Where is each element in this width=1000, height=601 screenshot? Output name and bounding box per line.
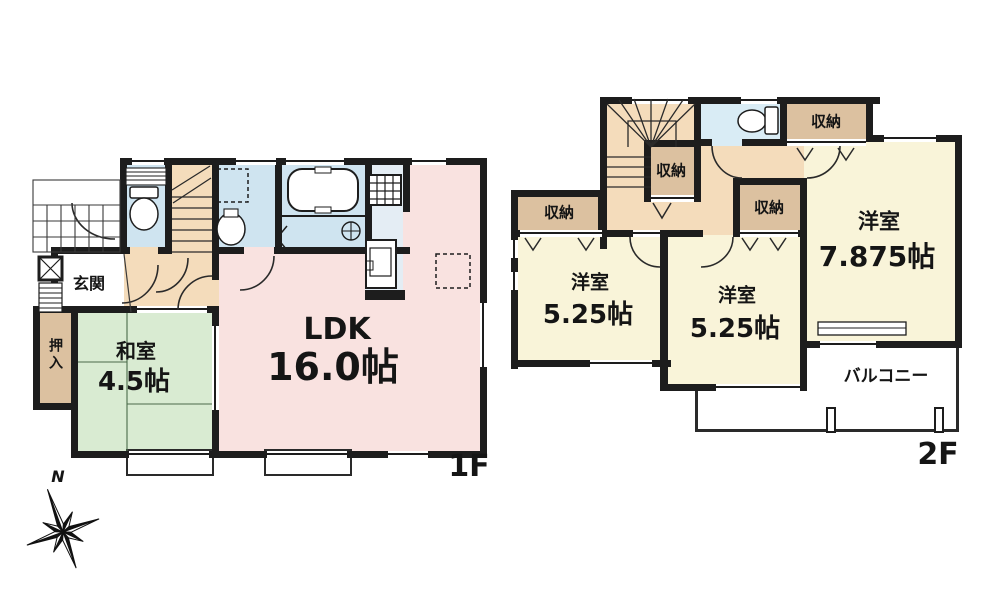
- window: [388, 451, 428, 458]
- window: [884, 135, 936, 142]
- sliding-door: [212, 326, 219, 410]
- wall: [33, 403, 78, 410]
- wall: [733, 178, 807, 185]
- closet-opening: [740, 230, 798, 237]
- door-arc: [72, 203, 115, 239]
- compass-north-label: N: [51, 469, 64, 485]
- room-hall1-floor: [124, 247, 219, 313]
- window: [132, 158, 164, 165]
- wall: [660, 230, 668, 391]
- balcony-rail: [695, 391, 698, 432]
- wall: [955, 135, 962, 348]
- wall: [212, 158, 219, 280]
- room-size-washitsu: 4.5帖: [98, 369, 170, 395]
- room-label-genkan: 玄関: [73, 276, 105, 292]
- room-label-oshiire: 押入: [48, 338, 62, 372]
- balcony-rail: [956, 346, 959, 432]
- room-label-yoshitsu-left: 洋室: [571, 274, 609, 293]
- closet-opening: [651, 195, 694, 202]
- window: [480, 303, 487, 367]
- window: [511, 272, 518, 290]
- window: [412, 158, 446, 165]
- room-label-washitsu: 和室: [116, 341, 156, 361]
- closet-opening: [520, 230, 602, 237]
- sliding-door: [137, 306, 207, 313]
- wall: [365, 290, 405, 300]
- window: [632, 97, 688, 104]
- room-yoshitsu-left-floor: [515, 234, 663, 364]
- wall: [694, 97, 701, 202]
- wall: [158, 247, 172, 254]
- wall: [742, 139, 787, 146]
- window: [741, 97, 777, 104]
- room-washroom-floor: [212, 158, 282, 254]
- wall: [33, 306, 40, 410]
- storage-label: 収納: [656, 164, 686, 179]
- wall: [665, 230, 703, 237]
- floor-label-2f: 2F: [917, 440, 958, 470]
- wall: [275, 158, 282, 254]
- door-opening: [633, 230, 660, 237]
- porch-tile-grid: [33, 180, 120, 252]
- wall: [165, 158, 172, 254]
- room-label-ldk: LDK: [303, 315, 370, 345]
- wall: [403, 158, 410, 212]
- storage-label: 収納: [754, 201, 784, 216]
- room-label-balcony: バルコニー: [844, 369, 929, 386]
- wall: [120, 158, 127, 254]
- compass-rose: [27, 490, 98, 568]
- wall: [120, 247, 130, 254]
- storage-label: 収納: [811, 115, 841, 130]
- wall: [733, 178, 740, 237]
- wall: [800, 178, 807, 391]
- room-size-ldk: 16.0帖: [267, 348, 399, 386]
- window: [511, 240, 518, 258]
- wall: [365, 158, 372, 254]
- room-bathroom-floor: [275, 158, 372, 254]
- room-size-yoshitsu-left: 5.25帖: [543, 302, 633, 328]
- floorplan-sheet: 玄関 押入 和室 4.5帖 LDK 16.0帖 1F 収納 収納 収納 収納 洋…: [0, 0, 1000, 601]
- room-label-yoshitsu-large: 洋室: [858, 212, 900, 233]
- wall: [212, 247, 244, 254]
- wall: [274, 247, 410, 254]
- room-yoshitsu-mid-floor: [667, 235, 803, 387]
- room-label-yoshitsu-mid: 洋室: [718, 287, 756, 306]
- window: [286, 158, 344, 165]
- wall: [644, 140, 701, 147]
- window: [267, 451, 347, 458]
- window: [590, 360, 652, 367]
- wall: [51, 247, 58, 313]
- wall: [71, 313, 78, 458]
- wall: [644, 140, 651, 202]
- window: [236, 158, 276, 165]
- window: [129, 451, 209, 458]
- window: [820, 341, 876, 348]
- wall: [511, 190, 605, 197]
- storage-label: 収納: [544, 206, 574, 221]
- wall: [51, 247, 127, 254]
- wall: [598, 190, 605, 235]
- floor-label-1f: 1F: [448, 452, 489, 482]
- room-size-yoshitsu-large: 7.875帖: [819, 243, 936, 271]
- window: [716, 384, 800, 391]
- closet-opening: [787, 139, 866, 146]
- balcony-rail: [695, 429, 959, 432]
- room-size-yoshitsu-mid: 5.25帖: [690, 316, 780, 342]
